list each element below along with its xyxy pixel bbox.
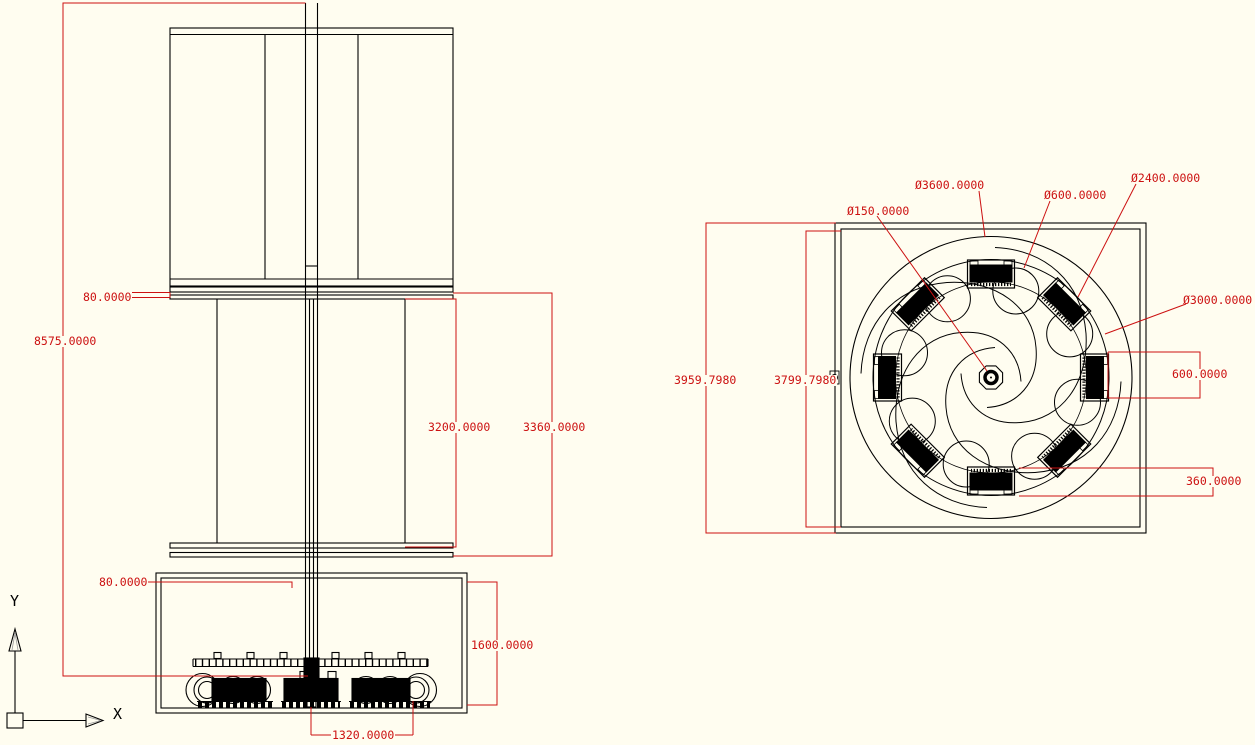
generator-left <box>186 674 273 707</box>
cad-viewport[interactable]: 8575.0000 80.0000 3200.0000 3360.0000 80… <box>0 0 1255 745</box>
dim-blade-width-label: 360.0000 <box>1185 476 1242 487</box>
dim-top-plate-label: 80.0000 <box>82 292 132 303</box>
generator-right <box>349 674 437 707</box>
dim-base-height-label: 1600.0000 <box>470 640 534 651</box>
plan-view-dimensions <box>706 184 1213 533</box>
plan-view <box>830 223 1146 533</box>
dim-blade-width-line <box>1019 468 1213 496</box>
middle-stage <box>170 299 453 557</box>
front-view-dimensions <box>63 3 552 735</box>
dim-top-plate-line <box>126 293 170 298</box>
leader-outer-circle <box>979 191 985 237</box>
cad-drawing <box>0 0 1255 745</box>
dim-base-plate-line <box>139 582 292 588</box>
dia-inner-circle-label: Ø3000.0000 <box>1183 295 1252 306</box>
dim-blade-length-label: 600.0000 <box>1171 369 1228 380</box>
dim-generator-spacing-label: 1320.0000 <box>331 730 395 741</box>
dim-base-plate-label: 80.0000 <box>98 577 148 588</box>
dia-hub-label: Ø150.0000 <box>847 206 909 217</box>
dim-rotor-inner-label: 3200.0000 <box>427 422 491 433</box>
dim-frame-inner-label: 3799.7980 <box>773 375 837 386</box>
ucs-y-label: Y <box>10 594 19 609</box>
ucs-x-label: X <box>113 707 122 722</box>
dim-overall-width-label: 3959.7980 <box>673 375 737 386</box>
dia-blade-circle-label: Ø2400.0000 <box>1131 173 1200 184</box>
ucs-arrow-up-icon <box>9 629 21 651</box>
dia-pocket-circle-label: Ø600.0000 <box>1044 190 1106 201</box>
leader-hub <box>877 216 987 371</box>
front-elevation-view <box>156 3 467 713</box>
hub <box>979 366 1002 389</box>
dim-total-height-label: 8575.0000 <box>33 336 97 347</box>
mid-plates <box>170 287 453 299</box>
dim-rotor-outer-label: 3360.0000 <box>522 422 586 433</box>
ucs-origin-box <box>7 713 23 728</box>
upper-stage-box <box>170 28 453 286</box>
dia-outer-circle-label: Ø3600.0000 <box>915 180 984 191</box>
ucs-icon <box>7 629 103 728</box>
